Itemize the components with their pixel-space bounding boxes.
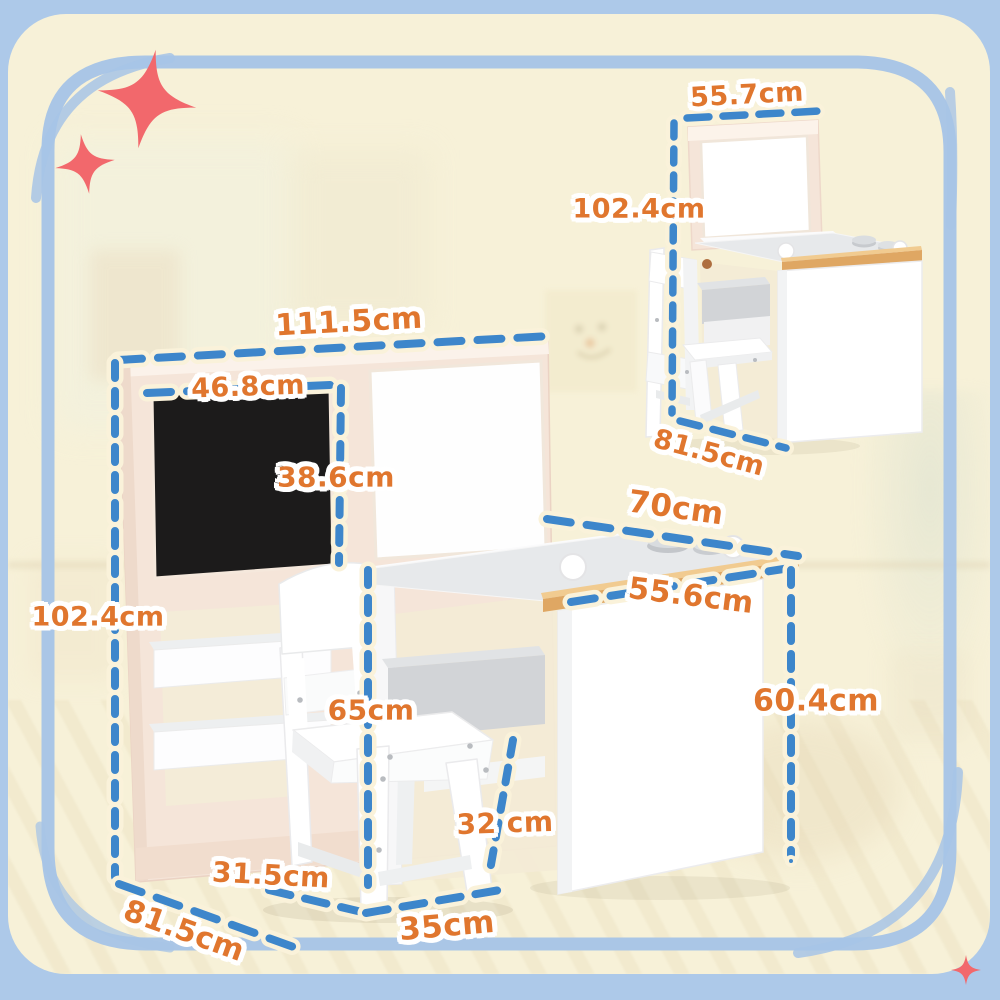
dim-label-main-total-height: 102.4cm: [31, 602, 164, 633]
dim-label-seat-height: 32 cm: [456, 805, 554, 841]
chair-backrest: [279, 563, 373, 654]
side-pencil-cup: [852, 236, 876, 248]
side-view-illustration: [646, 120, 922, 455]
sparkle-icon: [51, 130, 119, 198]
sparkle-icon: [951, 955, 981, 985]
dim-label-side-height: 102.4cm: [572, 194, 705, 225]
side-wooden-knob: [702, 259, 712, 269]
scene-graphic: [0, 0, 1000, 1000]
desk-front-panel: [558, 579, 763, 894]
dim-label-desk-height: 60.4cm: [753, 684, 879, 719]
knob-ball: [560, 554, 586, 580]
border-sketch-bottom-right: [798, 772, 958, 953]
dim-line-side-height: [672, 123, 674, 413]
side-easel-panel: [688, 120, 822, 250]
chair-far-leg: [396, 768, 415, 865]
border-sketch-top-right: [950, 92, 952, 225]
dim-label-side-width: 55.7cm: [689, 77, 804, 114]
side-whiteboard: [701, 136, 810, 238]
dim-label-blackboard-height: 38.6cm: [277, 461, 395, 494]
side-knob-ball: [778, 243, 794, 259]
whiteboard: [370, 361, 546, 559]
smiley-doodle-icon: [545, 290, 637, 392]
side-desk-front-panel: [778, 261, 922, 443]
dim-label-chair-depth: 31.5cm: [211, 855, 330, 894]
dim-label-chair-height: 65cm: [328, 694, 415, 727]
product-dimension-image: 111.5cm 46.8cm 38.6cm 102.4cm 65cm 70cm …: [0, 0, 1000, 1000]
dim-label-blackboard-width: 46.8cm: [191, 370, 306, 405]
